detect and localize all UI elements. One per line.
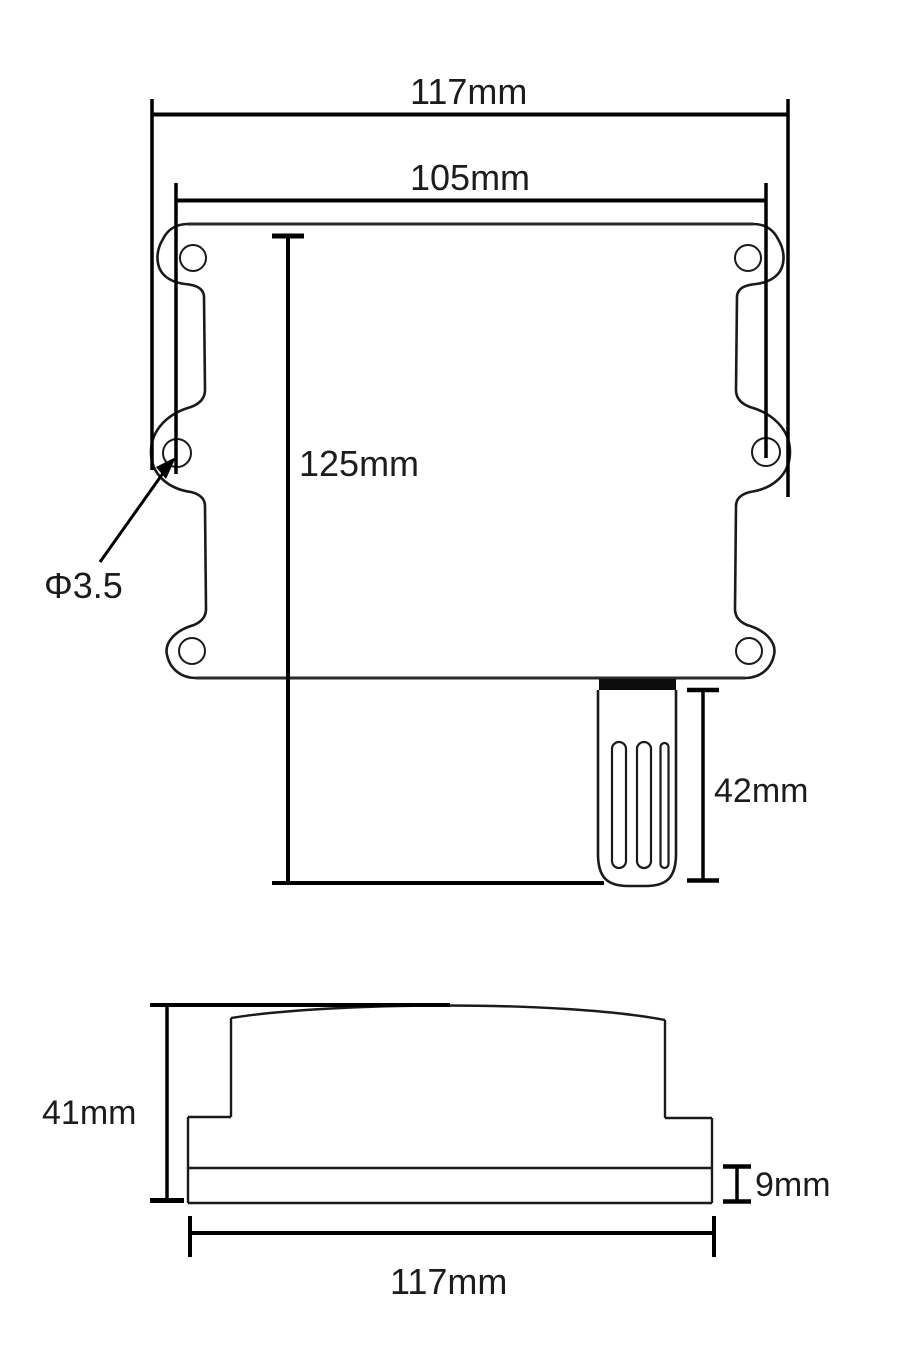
front-view <box>100 99 790 886</box>
dim-base-thickness <box>723 1167 751 1203</box>
mounting-hole-bottom-right <box>736 638 762 664</box>
enclosure-left-profile <box>151 224 206 678</box>
side-view <box>150 1005 751 1257</box>
sensor-probe <box>598 679 676 886</box>
dim-label-base-thickness: 9mm <box>755 1168 831 1202</box>
mounting-hole-top-right <box>735 245 761 271</box>
mounting-hole-bottom-left <box>179 638 205 664</box>
dim-label-front-inner-width: 105mm <box>410 160 530 196</box>
dim-label-side-overall-height: 41mm <box>42 1096 136 1130</box>
dim-front-inner-width <box>176 183 766 474</box>
hole-diameter-leader <box>100 457 176 562</box>
drawing-linework <box>0 0 900 1348</box>
dim-label-front-overall-width: 117mm <box>410 74 527 110</box>
mounting-hole-top-left <box>180 245 206 271</box>
dim-label-side-overall-width: 117mm <box>390 1264 507 1300</box>
leader-line <box>100 469 166 562</box>
probe-collar <box>599 679 676 690</box>
dim-side-overall-width <box>190 1216 714 1257</box>
dim-label-hole-diameter: Φ3.5 <box>44 568 123 604</box>
dim-side-overall-height <box>150 1005 450 1201</box>
enclosure-right-profile <box>735 224 790 678</box>
technical-drawing-canvas: 117mm 105mm 125mm Φ3.5 42mm 41mm 9mm 117… <box>0 0 900 1348</box>
dim-front-body-height <box>272 236 604 883</box>
dim-label-front-body-height: 125mm <box>299 446 419 482</box>
dim-label-probe-length: 42mm <box>714 774 808 808</box>
side-profile <box>188 1006 712 1204</box>
